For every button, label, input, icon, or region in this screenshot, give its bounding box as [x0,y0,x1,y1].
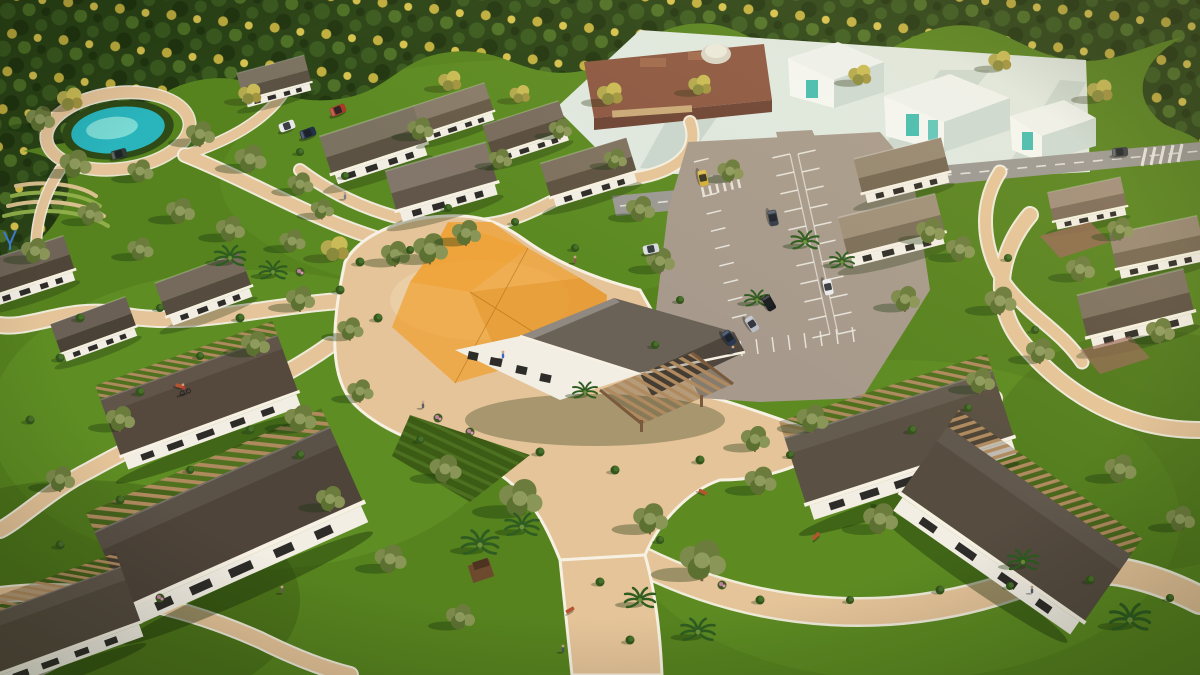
render-canvas: Sunlit aerial rendering of a single-stor… [0,0,1200,675]
vignette [0,0,1200,675]
aerial-render-image: Aerial 3D render - residential community… [0,0,1200,675]
